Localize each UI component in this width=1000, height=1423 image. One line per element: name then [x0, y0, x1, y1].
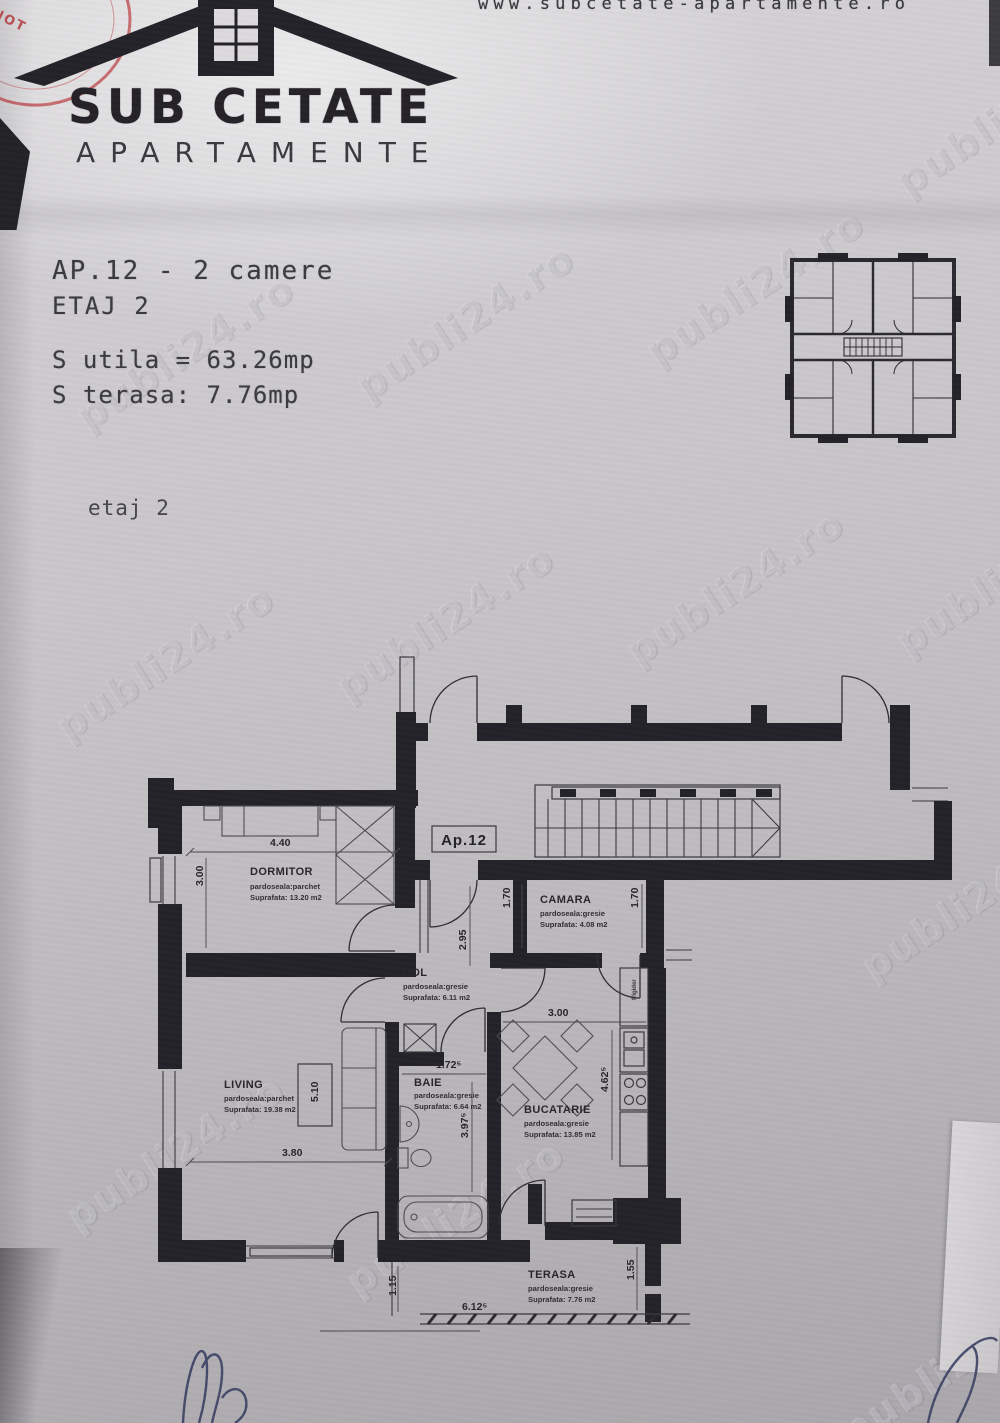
signature-right	[928, 1338, 997, 1423]
signature-left	[183, 1351, 246, 1423]
signatures-layer	[0, 0, 1000, 1423]
photographed-floor-plan-page: publi24.ro publi24.ro publi24.ro publi24…	[0, 0, 1000, 1423]
